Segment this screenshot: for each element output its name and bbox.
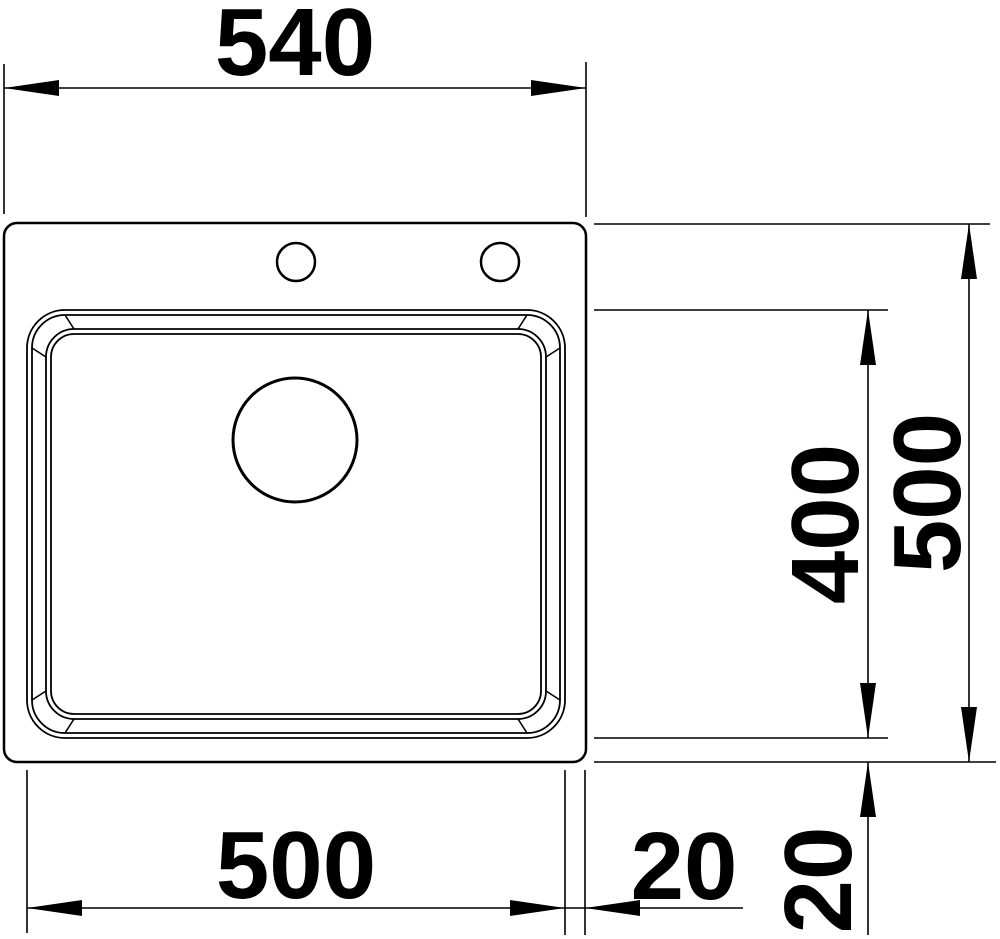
dimension-label-overall-width: 540	[215, 0, 375, 96]
tap-hole-right	[481, 243, 519, 281]
arrowhead-down	[860, 683, 876, 738]
bowl	[27, 310, 565, 738]
sink-body	[4, 223, 586, 762]
dimension-bowl-width: 500	[27, 770, 565, 935]
bowl-outline-outer	[27, 310, 565, 738]
dimension-bowl-depth: 400	[594, 310, 888, 738]
arrowhead-up	[860, 762, 876, 817]
arrowhead-up	[961, 224, 977, 279]
arrowhead-right	[531, 80, 586, 96]
dimension-label-overall-depth: 500	[874, 413, 981, 573]
bowl-outline-inner	[46, 329, 546, 719]
dimension-label-bottom-edge-gap: 20	[765, 827, 872, 934]
dimension-right-edge-gap: 20	[565, 770, 743, 935]
dimension-label-bowl-depth: 400	[772, 444, 879, 604]
bowl-outline-bottom	[51, 334, 541, 714]
drain-hole	[233, 378, 357, 502]
arrowhead-left	[27, 900, 82, 916]
drawing-canvas: 540 500 400 500 20 20	[0, 0, 1000, 939]
dimension-label-right-edge-gap: 20	[631, 813, 738, 920]
sink-technical-drawing: 540 500 400 500 20 20	[0, 0, 1000, 939]
sink-outer-outline	[4, 223, 586, 762]
arrowhead-left	[4, 80, 59, 96]
tap-hole-left	[277, 243, 315, 281]
arrowhead-up	[860, 310, 876, 365]
dimension-label-bowl-width: 500	[216, 812, 376, 919]
dimension-overall-width: 540	[4, 0, 586, 217]
arrowhead-right	[510, 900, 565, 916]
arrowhead-down	[961, 707, 977, 762]
dimension-bottom-edge-gap: 20	[765, 762, 876, 935]
